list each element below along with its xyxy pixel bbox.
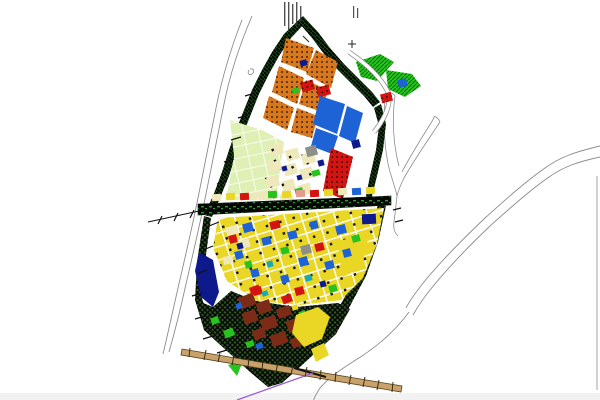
small-parcel [240,193,249,200]
bottom-strip [0,393,600,400]
station-text-mark [296,2,297,28]
station-text-mark [284,2,285,26]
small-parcel [282,191,291,198]
cad-viewport [0,0,600,400]
small-parcel [366,187,375,194]
station-text-mark [292,4,293,24]
small-parcel [226,193,235,200]
small-parcel [212,194,221,201]
small-parcel [324,189,333,196]
small-parcel [352,188,361,195]
small-parcel [338,188,347,195]
station-text-mark [300,6,301,22]
small-parcel [268,191,277,198]
navy-parcel [362,214,377,225]
small-parcel [254,192,263,199]
station-text-mark [353,6,354,18]
zoning-map-canvas [0,0,600,400]
station-text-mark [357,8,358,18]
small-parcel [310,190,319,197]
station-text-mark [288,2,289,30]
small-parcel [296,190,305,197]
